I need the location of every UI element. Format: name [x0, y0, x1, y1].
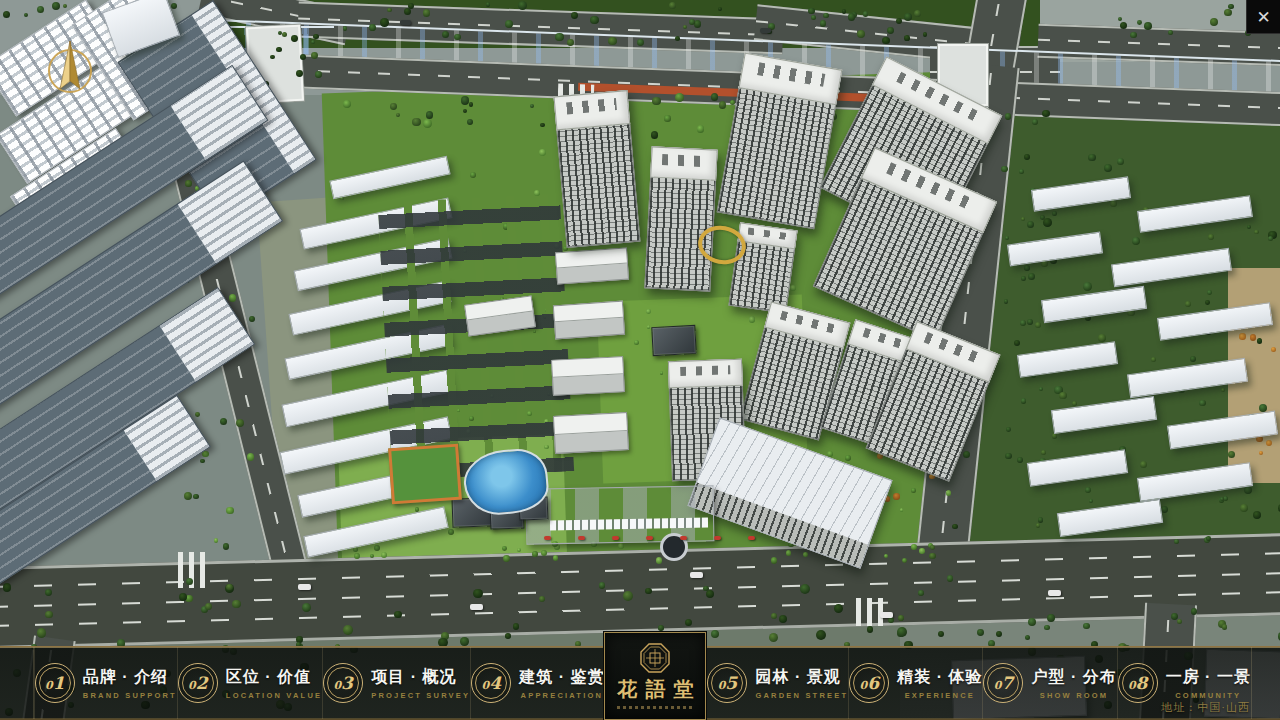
tree: [1089, 499, 1094, 504]
tree: [45, 611, 53, 619]
tree: [1205, 300, 1210, 305]
tree: [893, 493, 900, 500]
car: [880, 612, 893, 618]
nav-label-zh: 区位 · 价值: [226, 667, 311, 688]
nav-number: 02: [188, 675, 208, 692]
nav-number: 05: [718, 675, 738, 692]
tree: [689, 19, 695, 25]
tree: [247, 453, 255, 461]
tree: [897, 627, 907, 637]
tree: [771, 613, 778, 620]
tree: [608, 37, 617, 46]
nav-label-en: EXPERIENCE: [905, 691, 975, 700]
nav-label-en: BRAND SUPPORT: [83, 691, 177, 700]
tree: [1047, 614, 1055, 622]
tree: [1032, 119, 1038, 125]
tree: [637, 39, 644, 46]
tree: [249, 316, 255, 322]
tree: [660, 371, 664, 375]
tree: [171, 3, 178, 10]
tree: [539, 149, 546, 156]
tree: [888, 617, 894, 623]
tree: [567, 39, 574, 46]
tree: [1052, 211, 1057, 216]
tree: [469, 102, 474, 107]
tree: [1027, 319, 1033, 325]
tree: [1185, 301, 1191, 307]
tree: [503, 555, 510, 562]
tree: [996, 631, 1002, 637]
tree: [896, 18, 902, 24]
tree: [823, 13, 829, 19]
nav-badge: 02: [178, 663, 218, 703]
nav-label-en: PROJECT SURVEY: [371, 691, 470, 700]
tree: [664, 115, 671, 122]
tree: [1020, 320, 1026, 326]
close-button[interactable]: ✕: [1246, 0, 1280, 34]
tree: [771, 557, 778, 564]
aerial-map-viewport[interactable]: [0, 0, 1280, 720]
nav-badge: 05: [707, 663, 747, 703]
building: [651, 325, 696, 356]
tree: [646, 309, 651, 314]
tree: [1240, 504, 1248, 512]
tree: [599, 582, 606, 589]
tree: [711, 93, 719, 101]
tree: [898, 615, 904, 621]
nav-badge: 07: [983, 663, 1023, 703]
tree: [675, 93, 684, 102]
tree: [800, 584, 810, 594]
tree: [1130, 32, 1137, 39]
tree: [45, 589, 52, 596]
nav-badge: 08: [1118, 663, 1158, 703]
tree: [394, 611, 402, 619]
logo-tagline: [617, 706, 693, 709]
building: [555, 248, 629, 285]
tree: [226, 507, 234, 515]
tree: [195, 412, 200, 417]
nav-item-architecture-appreciation[interactable]: 04 建筑 · 鉴赏APPRECIATION: [470, 647, 604, 719]
tree: [845, 455, 852, 462]
tree: [1017, 457, 1023, 463]
tree: [532, 551, 538, 557]
tree: [553, 555, 559, 561]
tree: [977, 629, 984, 636]
building: [644, 146, 717, 291]
tree: [1006, 427, 1011, 432]
car: [690, 572, 703, 578]
tree: [313, 34, 319, 40]
car: [578, 536, 585, 540]
building: [553, 412, 629, 454]
tree: [354, 553, 360, 559]
tree: [904, 13, 912, 21]
tree: [790, 285, 796, 291]
tree: [929, 553, 936, 560]
tree: [1110, 200, 1118, 208]
tree: [1222, 624, 1228, 630]
nav-number: 07: [994, 675, 1014, 692]
tree: [291, 35, 298, 42]
tree: [381, 552, 387, 558]
nav-label-zh: 精装 · 体验: [897, 667, 982, 688]
tree: [369, 24, 376, 31]
tree: [1220, 497, 1225, 502]
tree: [1021, 217, 1025, 221]
tree: [1035, 322, 1041, 328]
tree: [656, 557, 663, 564]
tree: [930, 545, 935, 550]
close-icon: ✕: [1256, 7, 1270, 27]
tree: [518, 1, 527, 10]
tree: [623, 591, 633, 601]
tree: [1043, 218, 1052, 227]
tree: [918, 590, 924, 596]
tree: [1038, 517, 1044, 523]
nav-item-garden-landscape[interactable]: 05 园林 · 景观GARDEN STREET: [706, 647, 848, 719]
tree: [1021, 398, 1027, 404]
nav-badge: 04: [471, 663, 511, 703]
tree: [1137, 20, 1142, 25]
tree: [1098, 334, 1106, 342]
tree: [370, 554, 375, 559]
nav-badge: 01: [35, 663, 75, 703]
bar-spacer: [1251, 647, 1280, 719]
tree: [502, 546, 507, 551]
car: [1048, 590, 1061, 596]
tree: [184, 492, 192, 500]
tree: [683, 25, 688, 30]
tree: [423, 119, 432, 128]
tree: [1027, 221, 1035, 229]
tree: [470, 172, 476, 178]
tree: [1210, 18, 1218, 26]
tree: [343, 100, 352, 109]
car: [760, 28, 771, 33]
tree: [645, 588, 652, 595]
tree: [634, 340, 639, 345]
building: [388, 444, 462, 505]
tree: [1257, 338, 1263, 344]
tree: [282, 32, 287, 37]
nav-label-en: GARDEN STREET: [755, 691, 848, 700]
tree: [571, 12, 578, 19]
tree: [1199, 400, 1206, 407]
compass-icon: [42, 38, 98, 94]
tree: [296, 70, 303, 77]
nav-label-en: SHOW ROOM: [1040, 691, 1109, 700]
nav-label-en: LOCATION VALUE: [226, 691, 322, 700]
car: [714, 536, 721, 540]
nav-item-location-value[interactable]: 02 区位 · 价值LOCATION VALUE: [177, 647, 322, 719]
tree: [486, 2, 491, 7]
car: [470, 604, 483, 610]
tree: [938, 631, 945, 638]
tree: [867, 626, 874, 633]
car: [544, 536, 551, 540]
tree: [1028, 618, 1036, 626]
nav-item-interior-experience[interactable]: 06 精装 · 体验EXPERIENCE: [848, 647, 982, 719]
tree: [1144, 22, 1152, 30]
tree: [1021, 276, 1026, 281]
car: [400, 20, 411, 25]
nav-number: 01: [45, 675, 65, 692]
tree: [902, 558, 907, 563]
nav-item-brand-intro[interactable]: 01 品牌 · 介绍BRAND SUPPORT: [34, 647, 177, 719]
tree: [52, 2, 60, 10]
tree: [1004, 299, 1009, 304]
tree: [842, 9, 847, 14]
tree: [904, 35, 910, 41]
tree: [1271, 347, 1276, 352]
seal-emblem-icon: [640, 643, 670, 673]
tree: [1120, 22, 1127, 29]
nav-label-zh: 项目 · 概况: [371, 667, 456, 688]
nav-number: 08: [1128, 675, 1148, 692]
tree: [276, 47, 282, 53]
nav-number: 06: [859, 675, 879, 692]
tree: [911, 544, 917, 550]
building: [551, 356, 625, 396]
tree: [223, 543, 230, 550]
building: [553, 301, 625, 340]
tree: [590, 16, 599, 25]
tree: [1206, 536, 1211, 541]
tree: [311, 52, 318, 59]
tree: [1171, 613, 1178, 620]
project-logo-panel: 花語堂: [604, 632, 706, 720]
tree: [423, 9, 431, 17]
building: [378, 193, 574, 480]
tree: [226, 584, 233, 591]
car: [646, 536, 653, 540]
tree: [343, 625, 353, 635]
tree: [816, 630, 826, 640]
building: [554, 90, 641, 248]
tree: [1083, 282, 1092, 291]
tree: [887, 27, 894, 34]
nav-label-zh: 一房 · 一景: [1166, 667, 1251, 688]
nav-label-zh: 园林 · 景观: [755, 667, 840, 688]
car: [748, 536, 755, 540]
tree: [1161, 506, 1168, 513]
tree: [454, 34, 461, 41]
nav-label-zh: 建筑 · 鉴赏: [519, 667, 604, 688]
nav-item-floorplan-distribution[interactable]: 07 户型 · 分布SHOW ROOM: [982, 647, 1116, 719]
bottom-menu-bar: 01 品牌 · 介绍BRAND SUPPORT 02 区位 · 价值LOCATI…: [0, 646, 1280, 720]
car: [612, 536, 619, 540]
car: [298, 584, 311, 590]
nav-label-en: COMMUNITY: [1175, 691, 1241, 700]
nav-label-zh: 品牌 · 介绍: [83, 667, 168, 688]
tree: [505, 20, 513, 28]
tree: [1190, 356, 1197, 363]
presentation-window: ✕ 01 品牌 · 介绍BRAND SUPPORT 02 区位 · 价值LOCA…: [0, 0, 1280, 720]
tree: [426, 111, 434, 119]
nav-label-zh: 户型 · 分布: [1031, 667, 1116, 688]
nav-item-project-overview[interactable]: 03 项目 · 概况PROJECT SURVEY: [322, 647, 470, 719]
tree: [390, 103, 397, 110]
tree: [232, 600, 241, 609]
logo-title: 花語堂: [617, 676, 701, 703]
nav-badge: 06: [849, 663, 889, 703]
nav-number: 04: [481, 675, 501, 692]
bar-spacer: [0, 647, 34, 719]
tree: [236, 419, 244, 427]
tree: [311, 40, 315, 44]
tree: [1207, 290, 1212, 295]
tree: [669, 2, 676, 9]
car: [680, 536, 687, 540]
tree: [1208, 234, 1215, 241]
nav-badge: 03: [323, 663, 363, 703]
project-address: 地址：中国·山西: [1161, 700, 1250, 715]
tree: [1024, 154, 1030, 160]
nav-label-en: APPRECIATION: [521, 691, 604, 700]
tree: [694, 20, 702, 28]
tree: [374, 545, 380, 551]
tree: [911, 488, 916, 493]
nav-number: 03: [333, 675, 353, 692]
